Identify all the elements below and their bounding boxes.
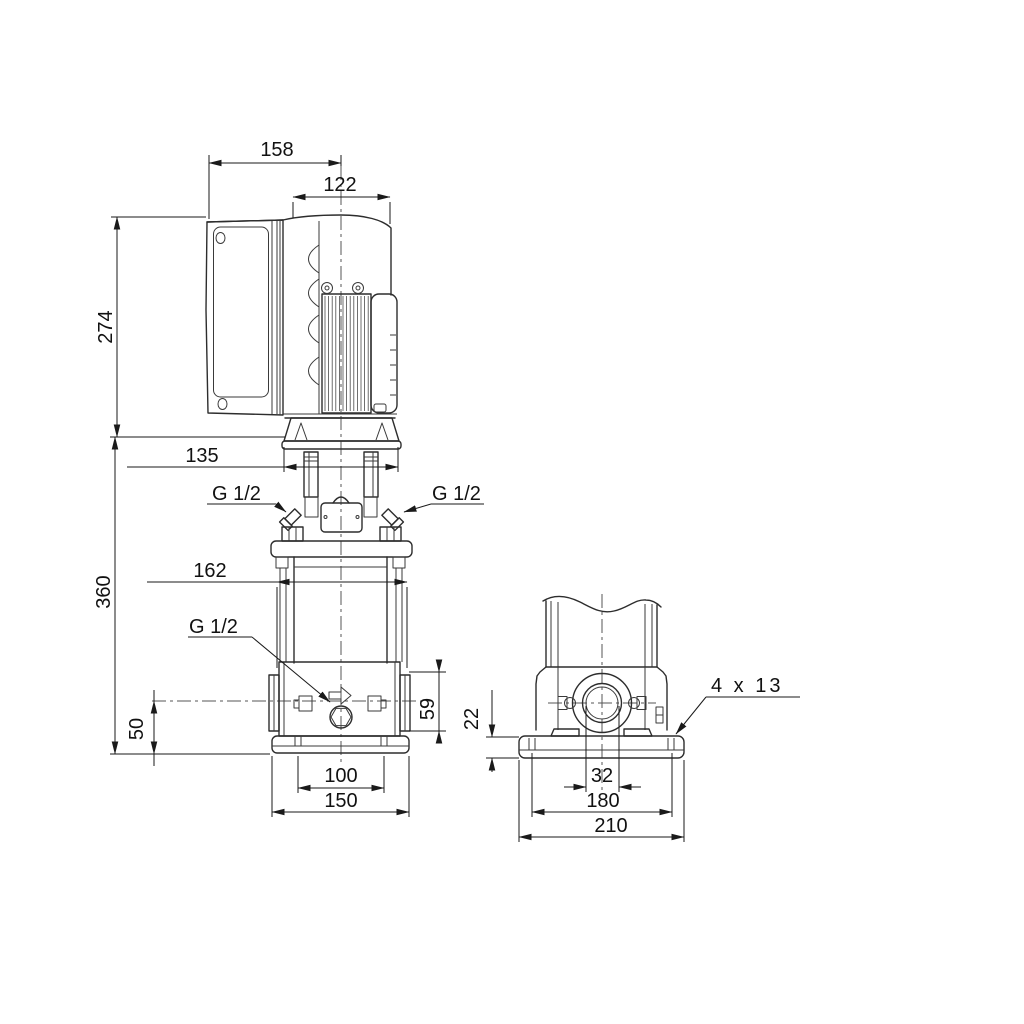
label-vent-port-left: G 1/2 bbox=[207, 483, 286, 512]
dim-base-height: 22 bbox=[461, 690, 519, 772]
dim-label-150: 150 bbox=[324, 790, 357, 812]
head-bolt-right bbox=[380, 527, 401, 541]
control-box bbox=[206, 220, 283, 415]
dim-label-158: 158 bbox=[260, 139, 293, 161]
dim-label-4x13: 4 x 13 bbox=[711, 675, 783, 697]
label-foundation-holes: 4 x 13 bbox=[676, 675, 800, 734]
dim-label-180: 180 bbox=[586, 790, 619, 812]
port-label-g12-right: G 1/2 bbox=[432, 483, 481, 505]
dim-overall-width: 158 bbox=[209, 139, 341, 219]
gauge-tapping-right bbox=[368, 696, 381, 711]
motor bbox=[207, 215, 397, 418]
technical-drawing: 158 122 274 135 bbox=[0, 0, 1024, 1024]
label-vent-port-right: G 1/2 bbox=[404, 483, 484, 512]
staybolt-nut-right bbox=[393, 557, 405, 568]
coupling-guard-left bbox=[304, 452, 318, 497]
chamber bbox=[269, 662, 410, 736]
side-view-pump-end: 22 32 180 210 4 x 13 bbox=[461, 594, 800, 842]
heat-sink-fins bbox=[325, 296, 368, 411]
dim-motor-height: 274 bbox=[95, 217, 285, 437]
drawing-page: 158 122 274 135 bbox=[0, 0, 1024, 1024]
port-label-g12-left: G 1/2 bbox=[212, 483, 261, 505]
screw-hole-top bbox=[216, 233, 225, 244]
screw-hole-bottom bbox=[218, 399, 227, 410]
port-label-g12-drain: G 1/2 bbox=[189, 616, 238, 638]
dim-label-274: 274 bbox=[95, 310, 117, 343]
front-dimensions: 158 122 274 135 bbox=[93, 139, 484, 817]
head-bolt-left bbox=[282, 527, 303, 541]
dim-label-122: 122 bbox=[323, 174, 356, 196]
dim-label-162: 162 bbox=[193, 560, 226, 582]
terminal-screw-right bbox=[353, 283, 364, 294]
front-view-pump-elevation: 158 122 274 135 bbox=[93, 139, 484, 817]
nameplate bbox=[656, 707, 663, 715]
dim-label-59: 59 bbox=[417, 698, 439, 720]
cable-entry bbox=[374, 404, 386, 412]
dim-label-135: 135 bbox=[185, 445, 218, 467]
foot-left bbox=[551, 729, 579, 736]
dim-label-210: 210 bbox=[594, 815, 627, 837]
foot-right bbox=[624, 729, 652, 736]
center-lines-side bbox=[548, 594, 656, 794]
dim-sleeve-width: 162 bbox=[147, 560, 407, 668]
dim-port-to-base: 50 bbox=[126, 690, 154, 766]
dim-label-22: 22 bbox=[461, 708, 483, 730]
dim-label-50: 50 bbox=[126, 718, 148, 740]
terminal-screw-left bbox=[322, 283, 333, 294]
staybolt-nut-left bbox=[276, 557, 288, 568]
gauge-tapping-left bbox=[299, 696, 312, 711]
label-drain-port: G 1/2 bbox=[188, 616, 330, 702]
dim-label-32: 32 bbox=[591, 765, 613, 787]
coupling-guard-right bbox=[364, 452, 378, 497]
dim-label-360: 360 bbox=[93, 575, 115, 608]
motor-fins bbox=[309, 245, 320, 385]
dim-label-100: 100 bbox=[324, 765, 357, 787]
